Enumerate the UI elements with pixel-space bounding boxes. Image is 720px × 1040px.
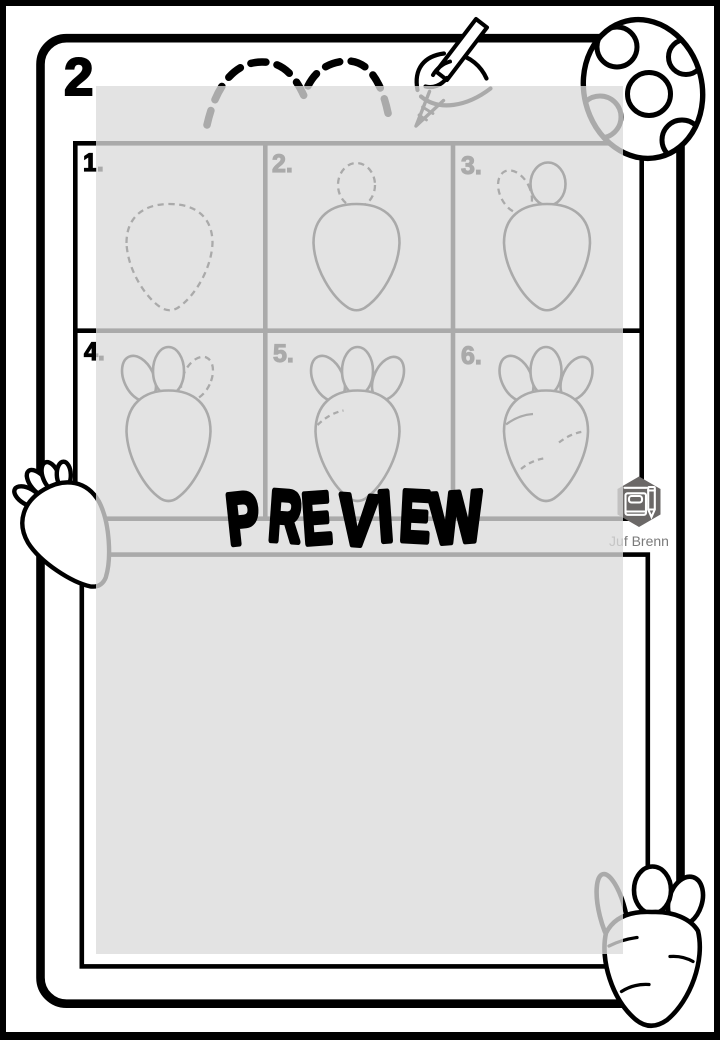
svg-text:V: V: [336, 479, 380, 562]
svg-text:E: E: [300, 477, 334, 560]
svg-text:W: W: [427, 476, 486, 560]
svg-text:R: R: [266, 475, 304, 558]
svg-text:2: 2: [64, 48, 93, 107]
